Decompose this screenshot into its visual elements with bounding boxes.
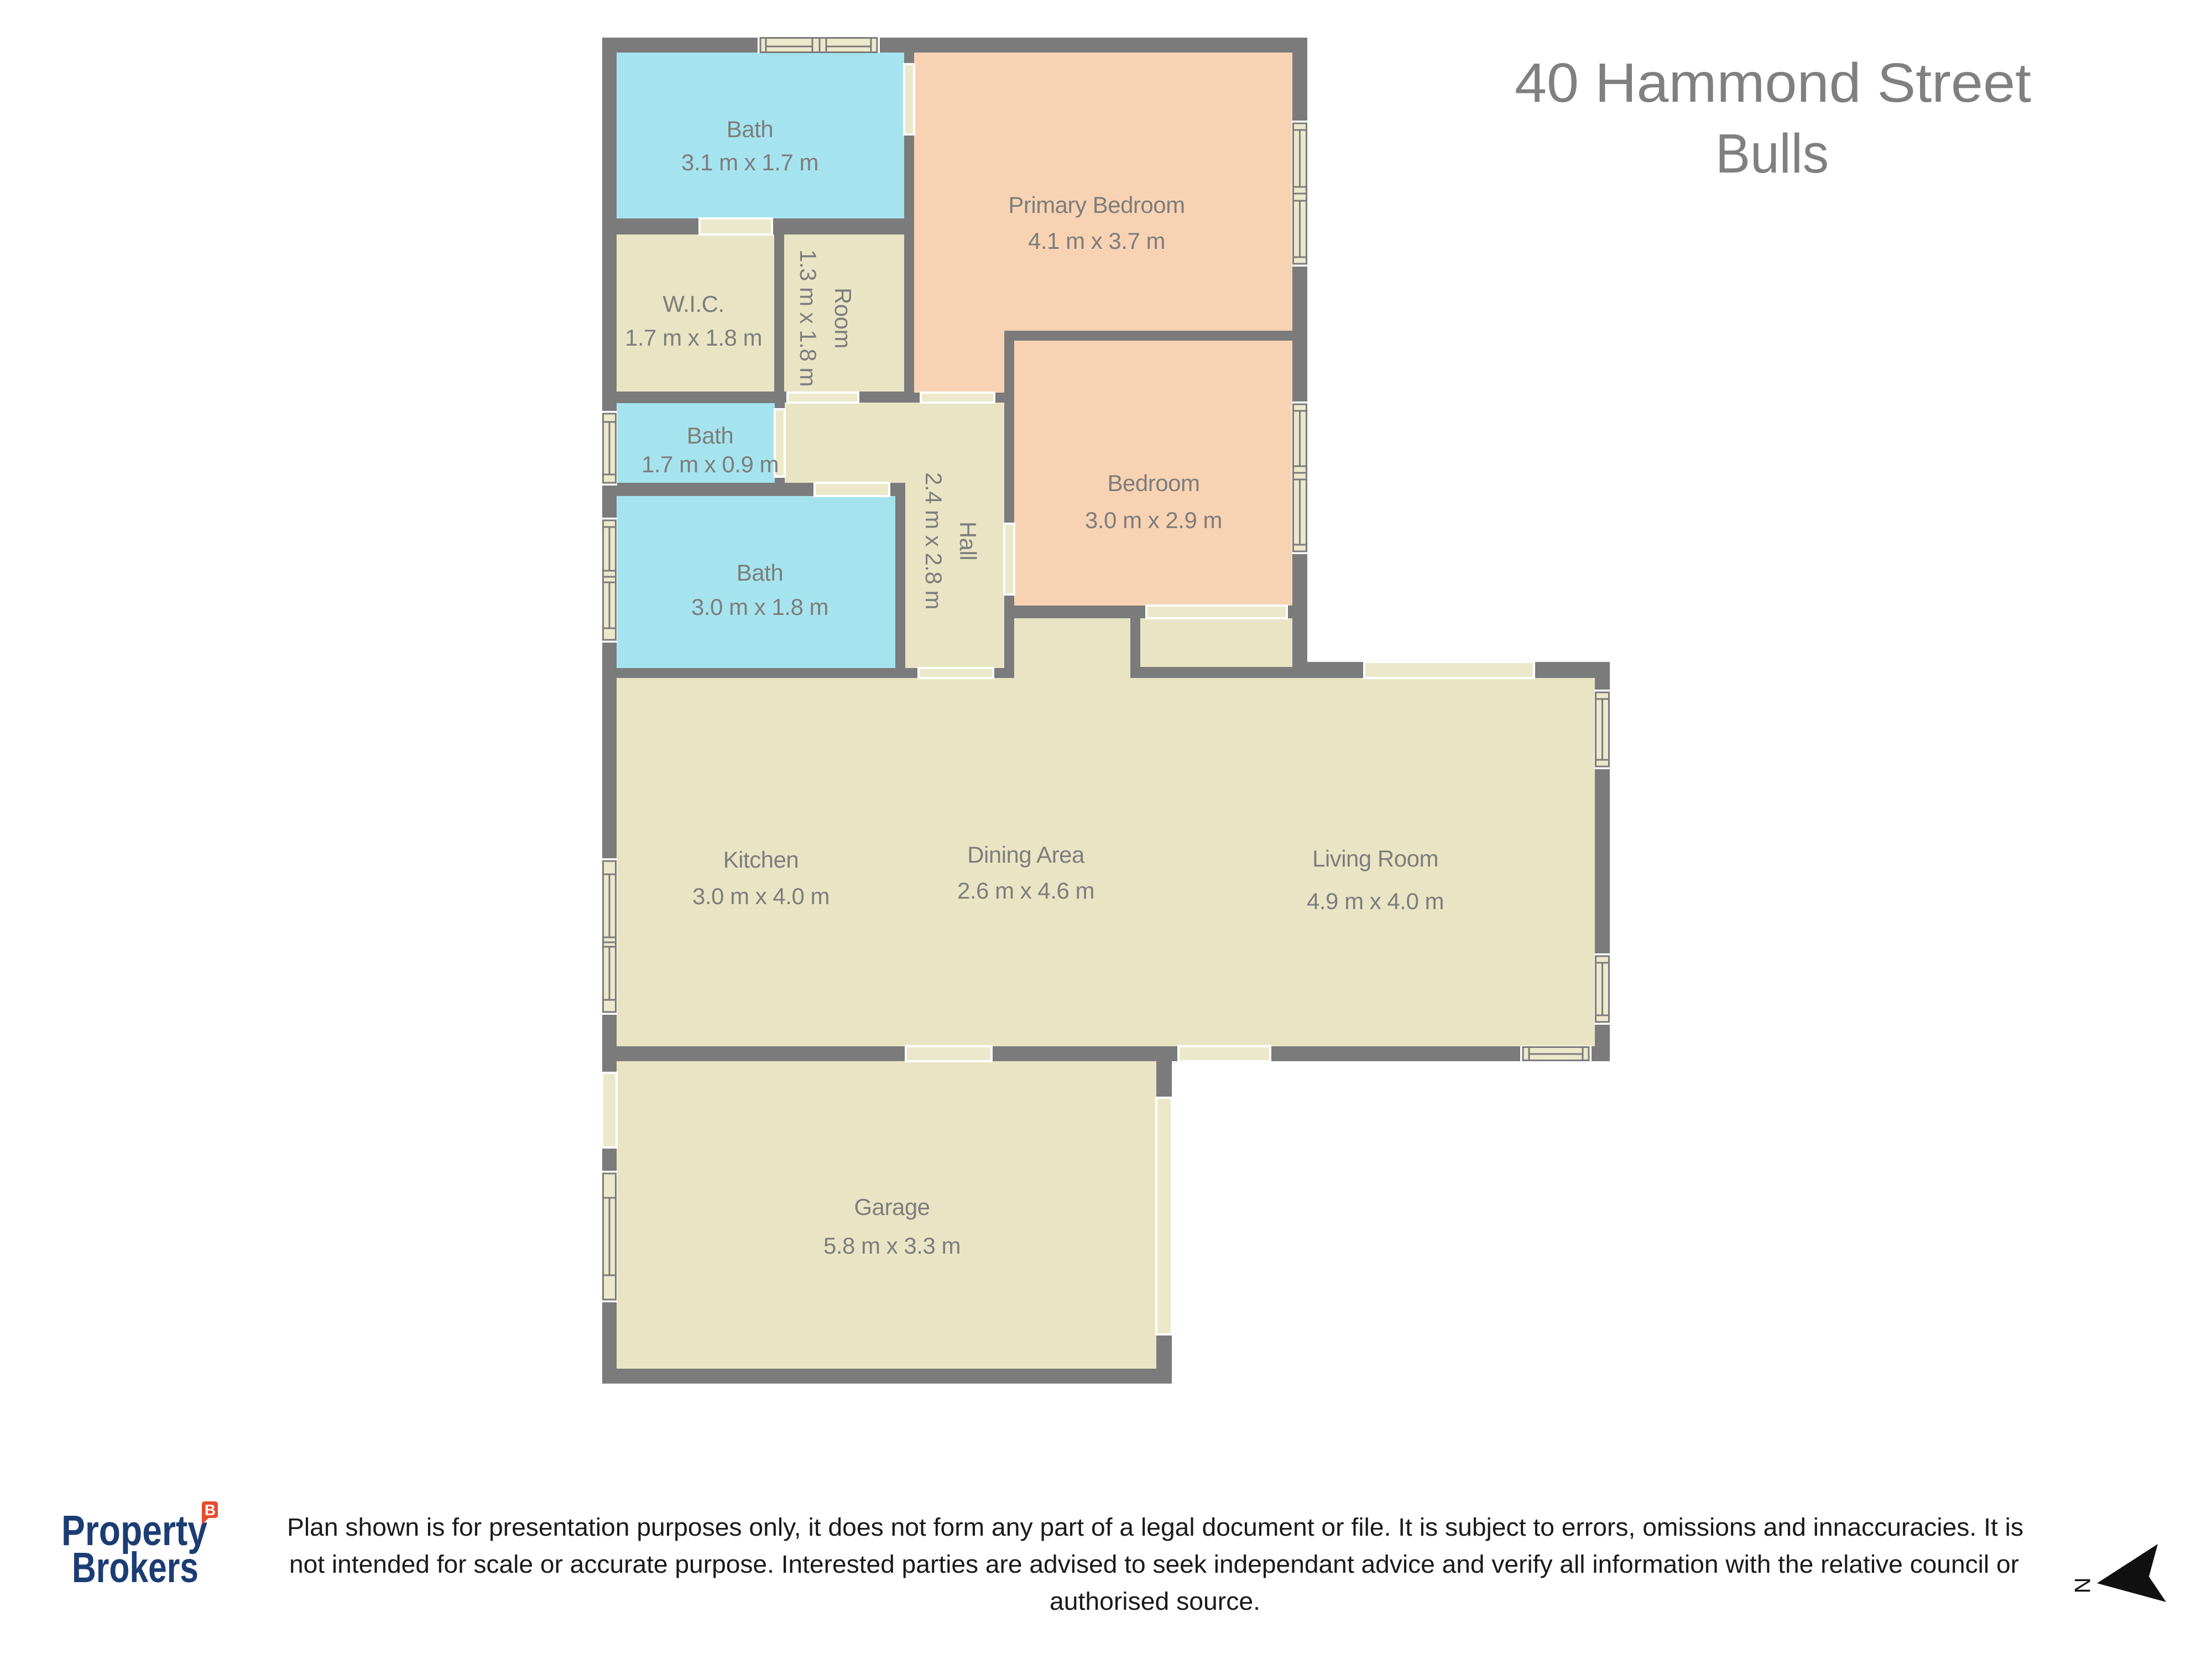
svg-text:3.0 m x 4.0 m: 3.0 m x 4.0 m <box>692 883 830 909</box>
svg-text:Garage: Garage <box>854 1194 930 1220</box>
svg-text:Room: Room <box>830 288 856 348</box>
svg-text:1.7 m x 0.9 m: 1.7 m x 0.9 m <box>641 451 779 477</box>
svg-text:1.3 m x 1.8 m: 1.3 m x 1.8 m <box>795 249 821 387</box>
svg-text:Hall: Hall <box>955 521 981 560</box>
svg-text:3.1 m x 1.7 m: 3.1 m x 1.7 m <box>681 149 818 175</box>
svg-text:Plan shown is for presentation: Plan shown is for presentation purposes … <box>287 1513 2023 1541</box>
svg-text:3.0 m x 1.8 m: 3.0 m x 1.8 m <box>691 594 828 620</box>
svg-text:Bulls: Bulls <box>1715 123 1829 185</box>
svg-text:4.9 m x 4.0 m: 4.9 m x 4.0 m <box>1307 888 1444 914</box>
svg-text:Brokers: Brokers <box>72 1544 199 1592</box>
svg-text:Bath: Bath <box>727 116 773 142</box>
svg-text:Dining Area: Dining Area <box>967 842 1085 868</box>
svg-text:Living Room: Living Room <box>1312 846 1438 872</box>
svg-text:40 Hammond Street: 40 Hammond Street <box>1515 52 2031 114</box>
svg-text:Primary Bedroom: Primary Bedroom <box>1008 192 1185 218</box>
svg-text:5.8 m x 3.3 m: 5.8 m x 3.3 m <box>823 1233 961 1259</box>
svg-text:3.0 m x 2.9 m: 3.0 m x 2.9 m <box>1085 507 1222 533</box>
svg-text:N: N <box>2070 1578 2094 1594</box>
svg-text:authorised source.: authorised source. <box>1050 1587 1260 1615</box>
svg-text:Bath: Bath <box>737 560 783 586</box>
svg-text:1.7 m x 1.8 m: 1.7 m x 1.8 m <box>625 325 762 351</box>
svg-text:Kitchen: Kitchen <box>723 847 799 873</box>
svg-text:4.1 m x 3.7 m: 4.1 m x 3.7 m <box>1028 228 1165 254</box>
svg-text:Bath: Bath <box>687 422 733 448</box>
svg-text:2.4 m x 2.8 m: 2.4 m x 2.8 m <box>921 472 947 609</box>
svg-text:Bedroom: Bedroom <box>1108 470 1200 496</box>
svg-text:not intended for scale or accu: not intended for scale or accurate purpo… <box>289 1550 2019 1578</box>
svg-text:2.6 m x 4.6 m: 2.6 m x 4.6 m <box>957 878 1094 904</box>
svg-text:W.I.C.: W.I.C. <box>662 291 724 317</box>
svg-text:B: B <box>205 1501 216 1519</box>
